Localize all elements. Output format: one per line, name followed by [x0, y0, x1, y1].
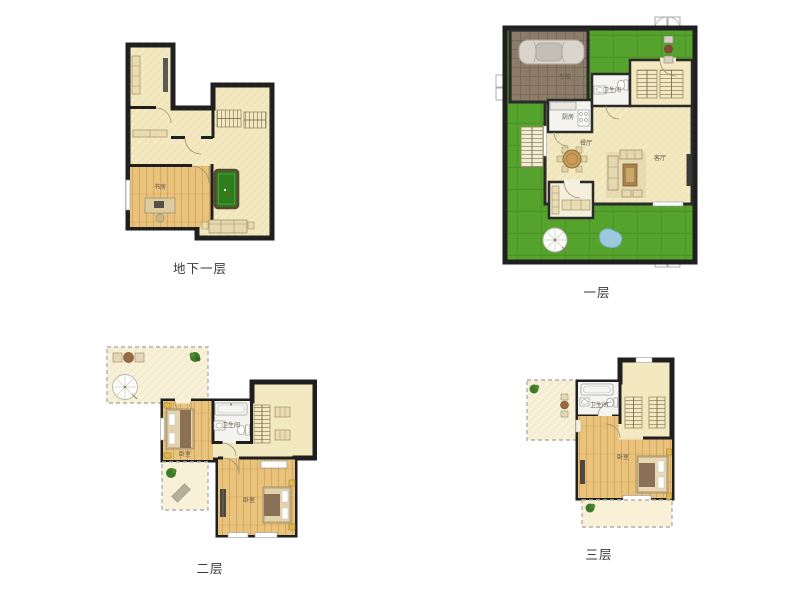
- bed-icon: [637, 456, 668, 493]
- room-garage: [510, 30, 588, 102]
- floor-plan-sheet: 书房 地下一层: [0, 0, 800, 600]
- hall-wall: [128, 106, 156, 109]
- stair-hall: [630, 58, 692, 107]
- window-seat-icon: [261, 461, 287, 468]
- stairs-icon: [254, 405, 270, 443]
- first-floor-drawing: 车库 卫生间 厨房 餐厅 客厅: [494, 14, 700, 270]
- third-floor-drawing: 卫生间 卧室: [523, 356, 675, 534]
- room-bedroom-left: [161, 399, 214, 461]
- second-floor-drawing: 卧室 卫生间 卧室: [103, 343, 317, 541]
- room-label-kitchen: 厨房: [562, 113, 574, 121]
- wing-divider-wall: [212, 85, 215, 138]
- room-label-bedroom-f3: 卧室: [617, 453, 629, 461]
- nightstand-icon: [164, 453, 171, 458]
- car-icon: [519, 40, 584, 64]
- porch: [549, 180, 593, 219]
- room-study: [126, 164, 214, 228]
- bed-icon: [263, 487, 291, 523]
- nightstand-icon: [667, 449, 672, 455]
- south-window-icon: [228, 533, 248, 538]
- room-label-bathroom-f2: 卫生间: [222, 421, 240, 429]
- terrace-chairs-table-icon: [113, 353, 144, 363]
- billiard-table-icon: [215, 170, 238, 208]
- tv-icon: [687, 154, 692, 186]
- corridor-wall-left: [171, 136, 185, 139]
- study-window-icon: [126, 180, 130, 210]
- floor-plan-basement: 书房 地下一层: [125, 40, 275, 277]
- room-label-garage: 车库: [559, 73, 571, 81]
- stairs-icon: [637, 70, 683, 98]
- room-label-study: 书房: [154, 183, 166, 191]
- flower-pots-icon: [664, 36, 673, 63]
- floor-label-first: 一层: [494, 282, 700, 301]
- floor-label-third: 三层: [523, 544, 675, 563]
- terrace-door-gap: [576, 420, 581, 432]
- dresser-icon: [580, 460, 585, 484]
- nightstand-icon: [667, 493, 672, 499]
- room-bathroom-f3: [578, 382, 620, 418]
- sofa-set-icon: [606, 150, 646, 198]
- room-label-bedroom-left: 卧室: [179, 450, 191, 458]
- floor-plan-first: 车库 卫生间 厨房 餐厅 客厅 一层: [494, 14, 700, 301]
- terrace-upper: [107, 347, 208, 403]
- outdoor-steps-icon: [521, 127, 543, 167]
- storage-cabinet-icon: [163, 58, 168, 92]
- kitchen-counter-icon: [550, 102, 576, 110]
- nightstand-icon: [289, 480, 295, 486]
- sideboard-icon: [133, 130, 167, 137]
- room-label-bathroom-f1: 卫生间: [603, 86, 621, 94]
- terrace-bottom: [582, 500, 672, 527]
- terrace-table-chairs-icon: [561, 394, 569, 417]
- bedroom-window-icon: [161, 418, 165, 440]
- terrace-door-gap: [175, 399, 191, 404]
- room-label-bathroom-f3: 卫生间: [590, 401, 608, 409]
- room-label-dining: 餐厅: [580, 139, 592, 147]
- living-south-window-icon: [653, 202, 683, 206]
- parasol-icon: [113, 375, 138, 400]
- sofa-icon: [202, 220, 254, 233]
- sink-icon: [580, 398, 589, 406]
- porch-bench-icon: [562, 200, 590, 210]
- floor-plan-second: 卧室 卫生间 卧室 二层: [103, 343, 317, 577]
- nightstand-icon: [289, 524, 295, 530]
- study-right-wall: [211, 164, 214, 228]
- bookshelf-icon: [132, 56, 140, 94]
- living-window-icon: [544, 126, 547, 156]
- stove-icon: [578, 110, 589, 126]
- room-label-living: 客厅: [654, 154, 666, 162]
- study-top-wall: [130, 164, 192, 167]
- roof-window-icon: [636, 358, 652, 363]
- porch-door-gap: [564, 180, 580, 185]
- bathtub-icon: [215, 403, 247, 415]
- floor-plan-third: 卫生间 卧室 三层: [523, 356, 675, 563]
- room-label-bedroom-main: 卧室: [243, 496, 255, 504]
- floor-label-second: 二层: [103, 558, 317, 577]
- nightstand-icon: [164, 403, 171, 408]
- corridor-wall-right: [201, 136, 213, 139]
- terrace-left: [527, 380, 578, 440]
- floor-label-basement: 地下一层: [125, 258, 275, 277]
- south-window-icon: [255, 533, 277, 538]
- terrace-lower: [162, 462, 208, 510]
- bathtub-icon: [581, 384, 613, 395]
- room-bedroom-main: [218, 457, 295, 538]
- basement-drawing: 书房: [125, 40, 275, 242]
- bed-icon: [166, 409, 194, 449]
